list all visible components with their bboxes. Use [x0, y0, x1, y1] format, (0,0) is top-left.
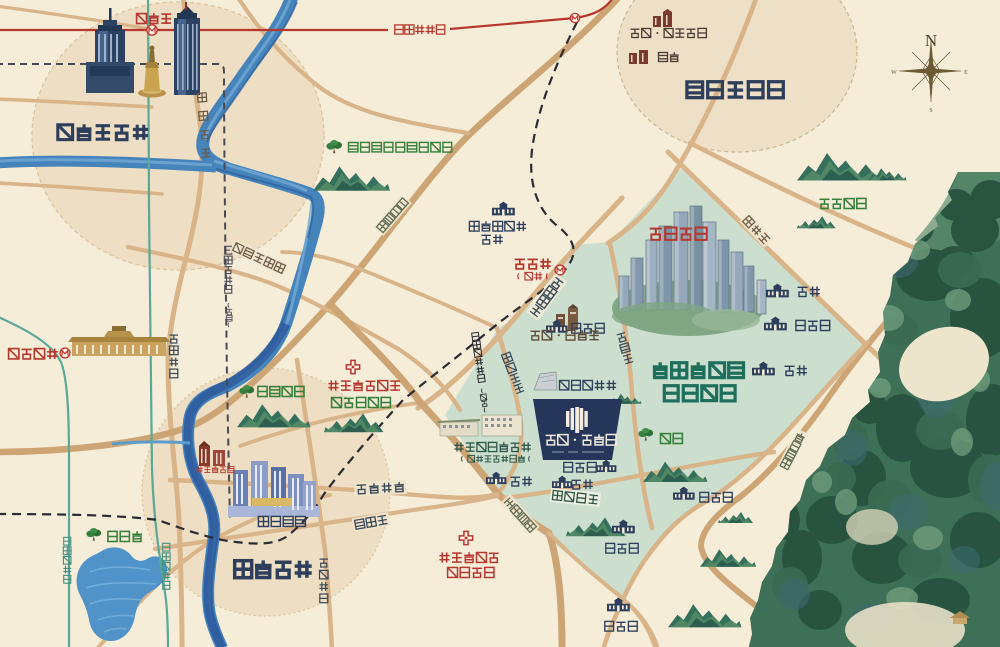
svg-text:W: W [891, 70, 897, 76]
svg-text:N: N [925, 31, 937, 50]
svg-text:E: E [964, 70, 968, 76]
svg-text:S: S [929, 108, 932, 114]
